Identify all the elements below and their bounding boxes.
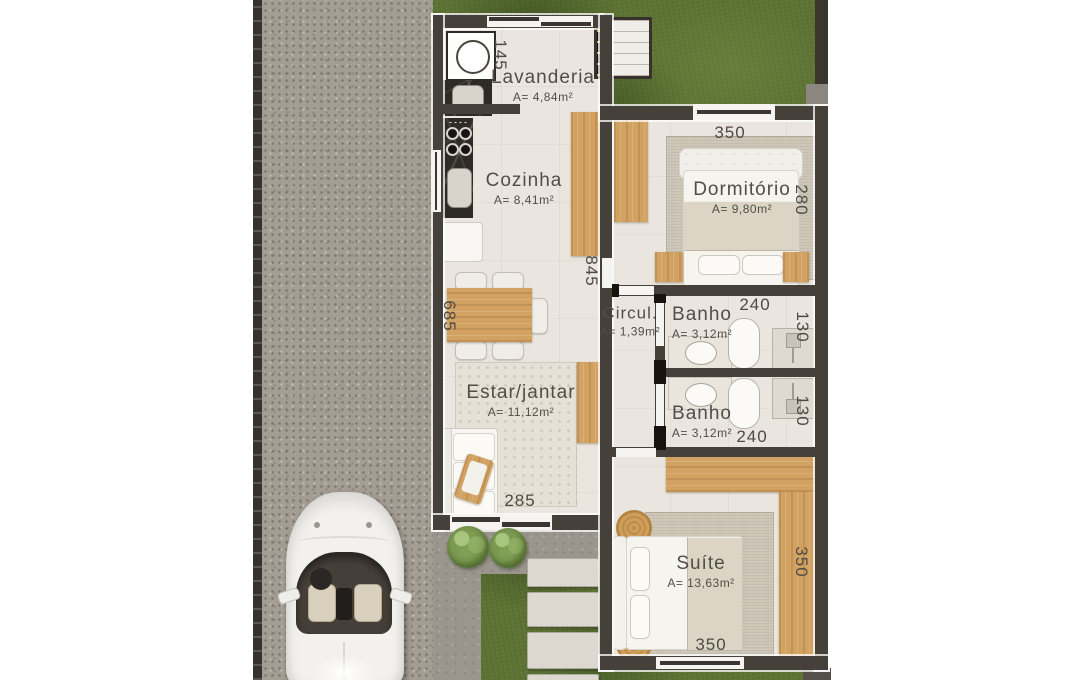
door-jamb [654,360,666,384]
label-lavanderia: Lavanderia A= 4,84m² [491,67,595,105]
kitchen-window [431,150,441,212]
dim-banho1-width: 240 [739,295,770,315]
room-name: Cozinha [486,170,563,192]
room-name: Suíte [667,553,734,575]
dim-lavanderia-height: 145 [490,39,510,70]
door-jamb [654,294,666,303]
dorm-pillow [742,255,784,275]
label-circulacao: Circul. A= 1,39m² [600,303,660,338]
room-name: Dormitório [693,179,791,201]
room-name: Circul. [600,303,660,323]
dim-banho1-depth: 130 [792,311,812,342]
dining-chair [492,341,524,360]
label-estar-jantar: Estar/jantar A= 11,12m² [466,382,575,420]
label-dormitorio: Dormitório A= 9,80m² [693,179,791,217]
banho1-sink [685,341,717,365]
wall-banho-banho [655,368,828,377]
dorm-nightstand [655,252,683,282]
dim-cozinha-depth: 845 [581,255,601,286]
curb-strip [253,0,262,680]
burner [446,127,459,140]
label-suite: Suíte A= 13,63m² [667,553,734,591]
passage-cozinha-circulacao [602,258,612,288]
dim-mesa: 685 [439,300,459,331]
armchair-seat [461,460,488,496]
room-area: A= 3,12m² [672,427,732,441]
walkway [433,560,481,680]
stepping-stone [527,674,599,680]
room-name: Banho [672,304,732,326]
utility-box [806,84,828,108]
tv-panel [577,362,602,443]
kitchen-island [439,222,483,262]
room-area: A= 1,39m² [600,325,660,339]
car-console [336,588,352,620]
burner [459,127,472,140]
door-leaf [502,522,550,527]
suite-door [616,448,656,457]
car-detail-dot [314,522,320,528]
shower-pipe [792,347,794,363]
burner [459,143,472,156]
stepping-stone [527,632,599,669]
laundry-door [487,16,593,27]
wall [815,106,828,670]
room-area: A= 4,84m² [491,91,595,105]
window-glass [697,110,771,114]
dim-banho2-depth: 130 [792,395,812,426]
stepping-stone [527,592,599,627]
kitchen-cabinet [571,112,602,256]
wall-lavanderia-cozinha [433,104,520,114]
dim-suite-depth: 350 [791,546,811,577]
car-cabin [296,552,392,634]
car [278,492,410,680]
dining-table [447,288,532,342]
door-jamb [612,284,619,297]
window-glass [435,152,437,210]
suite-pillow [630,547,650,591]
car-seat [354,584,382,622]
wall [433,15,443,530]
dorm-pillow [698,255,740,275]
dormitorio-window [693,104,775,120]
dormitorio-door [616,286,654,295]
room-area: A= 3,12m² [672,328,732,342]
dining-chair [455,341,487,360]
car-detail-dot [366,522,372,528]
banho2-bathtub [728,378,760,429]
dorm-nightstand [783,252,809,282]
room-area: A= 9,80m² [693,203,791,217]
door-jamb [654,426,666,450]
burner [446,143,459,156]
washing-machine [446,31,496,81]
room-area: A= 11,12m² [466,406,575,420]
suite-window [656,657,744,669]
room-area: A= 8,41m² [486,194,563,208]
washer-drum [456,40,490,74]
room-name: Banho [672,403,732,425]
stepping-stone [527,558,599,587]
car-steering-wheel [310,568,332,590]
shelf-slats [612,20,649,76]
dim-banho2-width: 240 [736,427,767,447]
door-leaf [541,22,591,26]
label-banho-inferior: Banho A= 3,12m² [672,403,732,441]
dim-dormitorio-depth: 280 [791,184,811,215]
label-cozinha: Cozinha A= 8,41m² [486,170,563,208]
dim-suite-width: 350 [695,635,726,655]
car-hood-shine [312,654,376,680]
bush [447,526,489,568]
stove-knobs [448,121,468,124]
suite-wardrobe-top [666,455,815,492]
door-leaf [452,517,500,522]
dim-estar-frente: 285 [504,491,535,511]
door-leaf [489,17,539,21]
room-name: Estar/jantar [466,382,575,404]
suite-pillow [630,595,650,639]
car-roof-line [298,536,390,548]
dorm-wardrobe [614,120,648,222]
floor-plan-canvas: Lavanderia A= 4,84m² Cozinha A= 8,41m² D… [0,0,1080,680]
kitchen-sink [447,168,472,208]
bush [489,528,527,568]
kitchen-counter [443,118,473,218]
banho2-door [656,382,664,426]
dim-dormitorio-width: 350 [714,123,745,143]
banho1-bathtub [728,318,760,369]
room-area: A= 13,63m² [667,577,734,591]
label-banho-superior: Banho A= 3,12m² [672,304,732,342]
window-glass [660,661,740,665]
